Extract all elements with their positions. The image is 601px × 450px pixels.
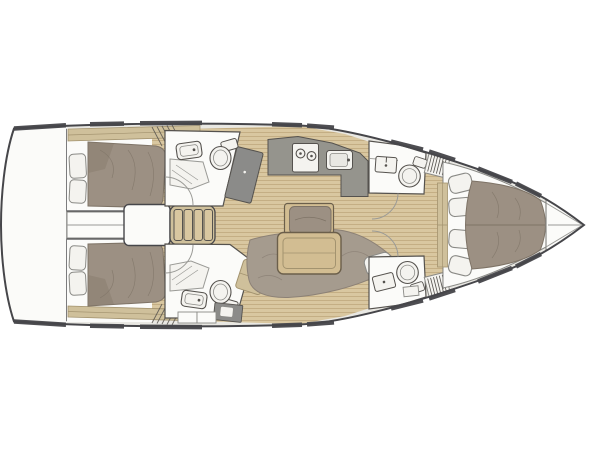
engine-compartment — [124, 205, 170, 246]
locker — [178, 312, 197, 323]
sink — [375, 156, 397, 173]
swim-platform — [1, 120, 67, 330]
bow-locker — [546, 145, 601, 305]
pillow — [69, 180, 87, 204]
pillow — [69, 272, 87, 296]
sink — [181, 290, 208, 309]
salon-seat — [285, 204, 334, 237]
shelf-box — [403, 286, 419, 297]
pillow — [69, 246, 87, 271]
floorplan-canvas — [0, 0, 601, 450]
locker — [197, 312, 216, 323]
forward-cabin — [438, 161, 547, 289]
stove — [293, 144, 319, 173]
vanity-cabinet — [213, 303, 243, 323]
pillow — [69, 154, 87, 179]
yacht-floorplan — [0, 0, 601, 450]
galley-sink — [327, 151, 353, 170]
sink — [176, 141, 203, 160]
salon-table — [278, 233, 342, 275]
